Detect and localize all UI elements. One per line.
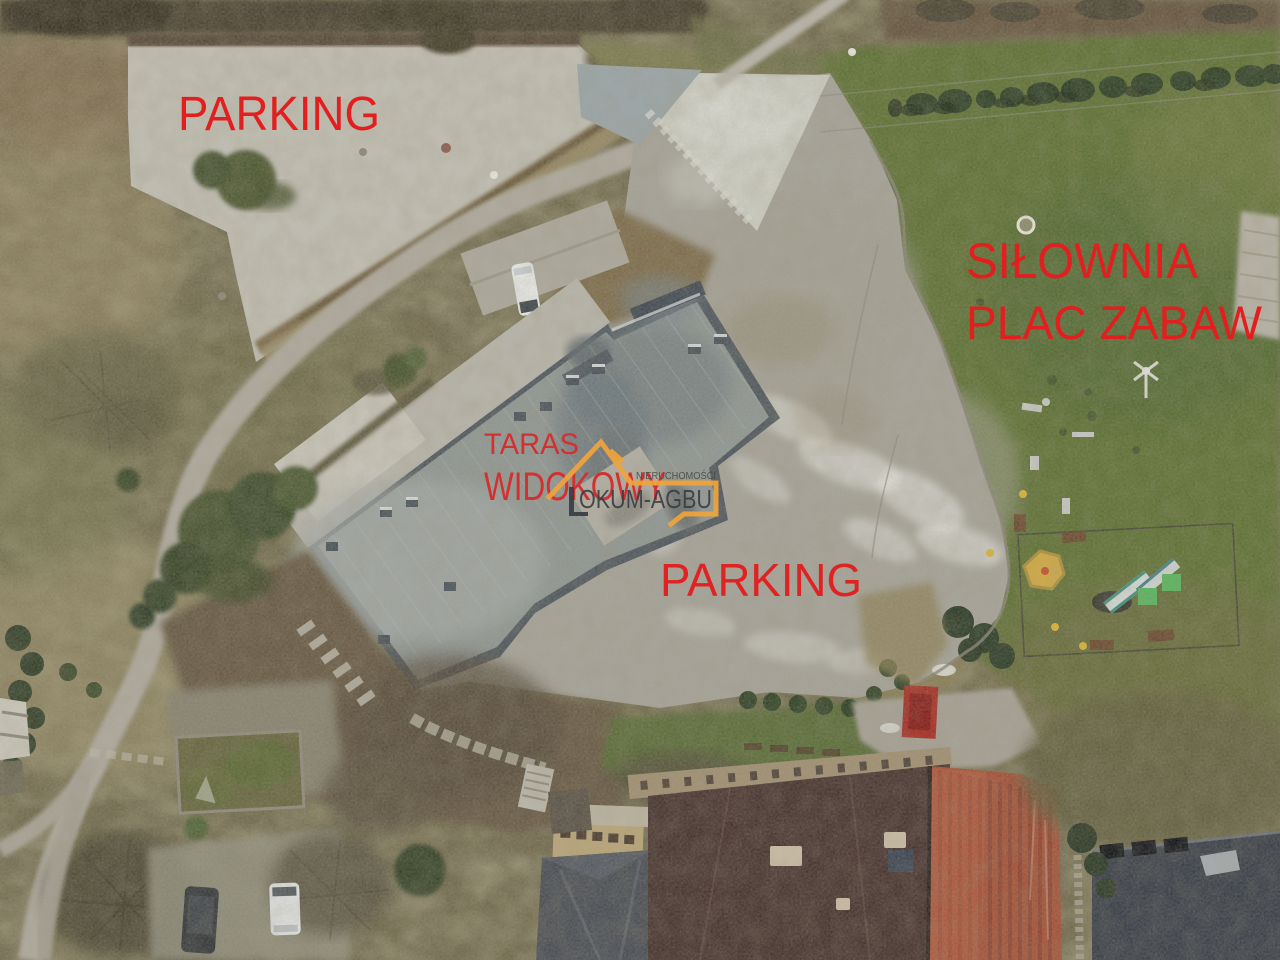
svg-text:OKUM-AGBU: OKUM-AGBU (579, 484, 712, 514)
svg-text:PARKING: PARKING (178, 88, 380, 141)
svg-text:PARKING: PARKING (660, 554, 862, 606)
svg-text:NIERUCHOMOŚCI: NIERUCHOMOŚCI (636, 469, 716, 482)
svg-text:PLAC ZABAW: PLAC ZABAW (966, 296, 1263, 349)
svg-text:SIŁOWNIA: SIŁOWNIA (966, 233, 1199, 289)
svg-text:TARAS: TARAS (484, 428, 579, 461)
